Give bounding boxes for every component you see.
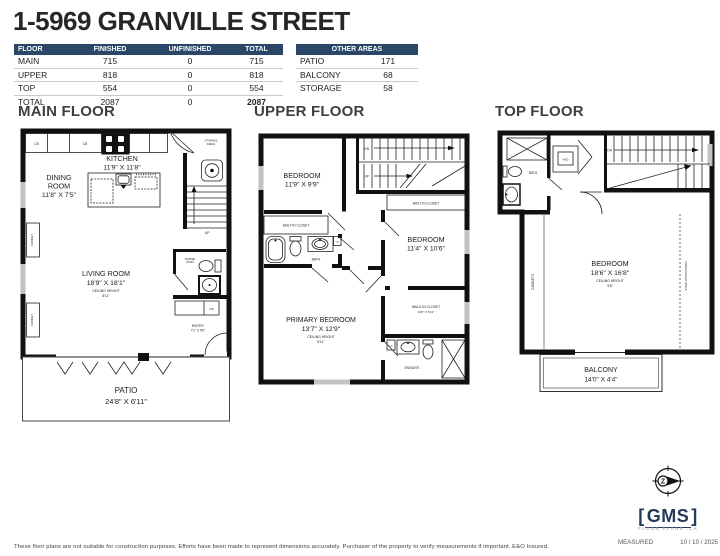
up-label: UP [205,231,211,235]
gms-name: GMS [645,506,692,528]
other-areas-table: OTHER AREAS PATIO 171 BALCONY 68 STORAGE… [296,44,418,95]
floor-area-table-header: FLOOR FINISHED UNFINISHED TOTAL [14,44,283,55]
living-room-label: LIVING ROOM [82,269,130,278]
interior-wall [342,134,346,212]
bracket: ] [691,506,698,526]
cb-label: CB [209,307,213,311]
dining-label: ROOM [48,182,70,191]
bath-label: BATH [529,171,538,175]
table-row: TOP 554 0 554 [14,82,283,96]
powder-label: ROOM [186,262,193,264]
toilet-icon [423,345,433,359]
ceiling-height-label: CEILING HEIGHT [307,335,334,339]
cell-total: 554 [230,82,283,95]
table-row: PATIO 171 [296,55,418,69]
cb-label: CB [34,142,38,146]
cell-floor: MAIN [14,55,70,68]
balcony-dims: 14'0" X 4'4" [584,377,618,384]
bath-label: BATH [312,258,321,262]
toilet-tank [503,166,507,177]
page-title: 1-5969 GRANVILLE STREET [13,6,350,37]
window [21,264,26,294]
gms-wordmark: [GMS] [616,507,720,525]
cell-unfinished: 0 [150,82,230,95]
header-unfinished: UNFINISHED [150,44,230,55]
compass-icon: Z [650,464,686,500]
built-in-closet-label: BUILT-IN CLOSET [283,224,310,228]
window [465,302,470,324]
compass-letter: Z [661,478,666,485]
wall-stub [138,353,149,361]
toilet-icon [290,241,301,256]
patio-label: PATIO [115,386,138,395]
cb-label: CB [389,346,393,348]
cell-total: 715 [230,55,283,68]
window [465,230,470,254]
cabinet-label: CABINET [30,234,34,246]
cell-unfinished: 0 [150,55,230,68]
cell-finished: 818 [70,69,150,82]
cabinet-label: CABINET [30,314,34,326]
kitchen-dims: 11'9" X 11'8" [103,165,141,172]
ceiling-height-value: 8'11" [102,294,110,298]
window [708,144,713,166]
primary-bedroom-label: PRIMARY BEDROOM [286,317,356,324]
disclaimer-text: These floor plans are not suitable for c… [14,544,549,550]
compass-arrow [667,477,680,486]
ceiling-height-label: CEILING HEIGHT [596,279,623,283]
window [21,182,26,208]
bedroom2-dims: 11'4" X 10'6" [407,246,445,253]
gms-subtitle: FLOOR PLANS .CA [616,526,720,531]
up-label: UP [365,175,369,179]
storage-label: /MECH [207,142,215,146]
cell-value: 171 [358,55,418,68]
powder-label: POWDER [185,259,196,261]
primary-bedroom-dims: 13'7" X 12'9" [302,326,341,333]
table-row: BALCONY 68 [296,69,418,83]
ensuite-label: ENSUITE [405,366,420,370]
interior-wall [520,210,550,215]
ceiling-height-label: CEILING HEIGHT [92,289,119,293]
other-areas-header: OTHER AREAS [296,44,418,55]
toilet-icon [509,167,522,177]
cell-floor: TOP [14,82,70,95]
bedroom-dims: 18'6" X 16'8" [591,270,630,277]
window [314,380,350,385]
toilet-tank [215,260,221,272]
header-floor: FLOOR [14,44,70,55]
dining-dims: 11'8" X 7'5" [42,192,77,199]
balcony-label: BALCONY [584,367,618,374]
ceiling-height-value: 8'11" [317,340,325,344]
cabinets-label: CABINETS [531,274,535,290]
header-finished: FINISHED [70,44,150,55]
cell-value: 68 [358,69,418,82]
cell-name: BALCONY [296,69,358,82]
cell-unfinished: 0 [150,69,230,82]
page: { "title": "1-5969 GRANVILLE STREET", "c… [0,0,720,556]
measured-label: MEASURED [618,539,653,546]
main-floor-heading: MAIN FLOOR [18,103,115,120]
cb-label: CB [336,241,340,243]
top-floor-plan: BATH W/D DN [494,126,720,428]
toilet-tank [290,237,301,242]
wd-label: W/D [563,158,570,162]
cell-name: STORAGE [296,82,358,95]
header-total: TOTAL [230,44,283,55]
cell-name: PATIO [296,55,358,68]
bedroom2-label: BEDROOM [407,235,444,244]
table-row: UPPER 818 0 818 [14,69,283,83]
cell-value: 58 [358,82,418,95]
upper-floor-heading: UPPER FLOOR [254,103,365,120]
patio-dims: 24'8" X 6'11" [105,397,147,406]
entry-label: ENTRY [192,324,205,328]
cell-finished: 554 [70,82,150,95]
bedroom1-label: BEDROOM [283,171,320,180]
dn-label: DN [607,149,612,153]
built-in-closet-label: BUILT-IN CLOSET [413,202,440,206]
under-height-label: UNDER HEIGHT SPACE [684,261,688,290]
ceiling-height-value: 9'6" [607,284,613,288]
toilet-tank [423,340,433,344]
cell-total: 818 [230,69,283,82]
table-row: MAIN 715 0 715 [14,55,283,69]
bedroom-label: BEDROOM [591,259,628,268]
bracket: [ [638,506,645,526]
gms-logo-block: Z [GMS] FLOOR PLANS .CA MEASURED 10 / 10… [616,464,720,546]
walkin-closet-label: WALK-IN CLOSET [412,305,441,309]
cell-finished: 715 [70,55,150,68]
entry-dims: 7'1" X 5'0" [191,329,205,333]
dn-label: DN [364,147,369,151]
table-row: STORAGE 58 [296,82,418,95]
cell-unfinished: 0 [150,96,230,109]
stove-icon [102,134,130,155]
living-room-dims: 18'9" X 18'1" [87,280,126,287]
measured-date: 10 / 10 / 2025 [680,539,718,546]
toilet-icon [199,261,213,272]
bedroom1-dims: 11'9" X 9'9" [285,182,320,189]
window [259,166,264,190]
floor-area-table: FLOOR FINISHED UNFINISHED TOTAL MAIN 715… [14,44,283,108]
top-floor-heading: TOP FLOOR [495,103,584,120]
cell-floor: UPPER [14,69,70,82]
main-floor-plan: CB CB STORAGE /MECH [18,124,236,426]
walkin-closet-dims: 10'6" X 5'11" [418,310,435,314]
kitchen-label: KITCHEN [106,154,138,163]
cb-label: CB [83,142,87,146]
upper-floor-plan: BUILT-IN CLOSET CB BATH [254,126,474,388]
measured-line: MEASURED 10 / 10 / 2025 [616,539,720,546]
